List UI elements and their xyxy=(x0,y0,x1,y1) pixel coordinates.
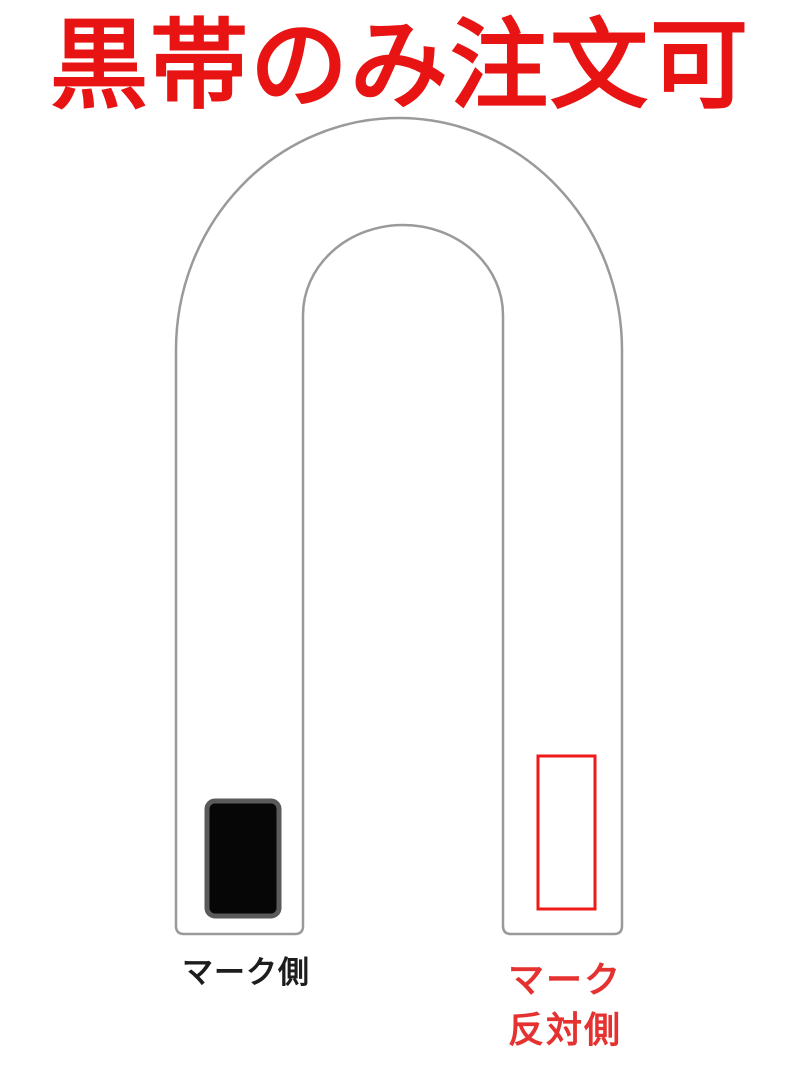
black-mark-patch xyxy=(207,801,279,916)
belt-diagram xyxy=(0,0,800,1089)
mark-opposite-side-label: マーク 反対側 xyxy=(483,955,647,1054)
belt-order-diagram: 黒帯のみ注文可 マーク側 マーク 反対側 xyxy=(0,0,800,1089)
mark-opposite-side-label-line2: 反対側 xyxy=(483,1005,647,1055)
mark-opposite-side-label-line1: マーク xyxy=(483,955,647,1005)
mark-side-label: マーク側 xyxy=(166,947,326,992)
page-title: 黒帯のみ注文可 xyxy=(0,16,800,114)
